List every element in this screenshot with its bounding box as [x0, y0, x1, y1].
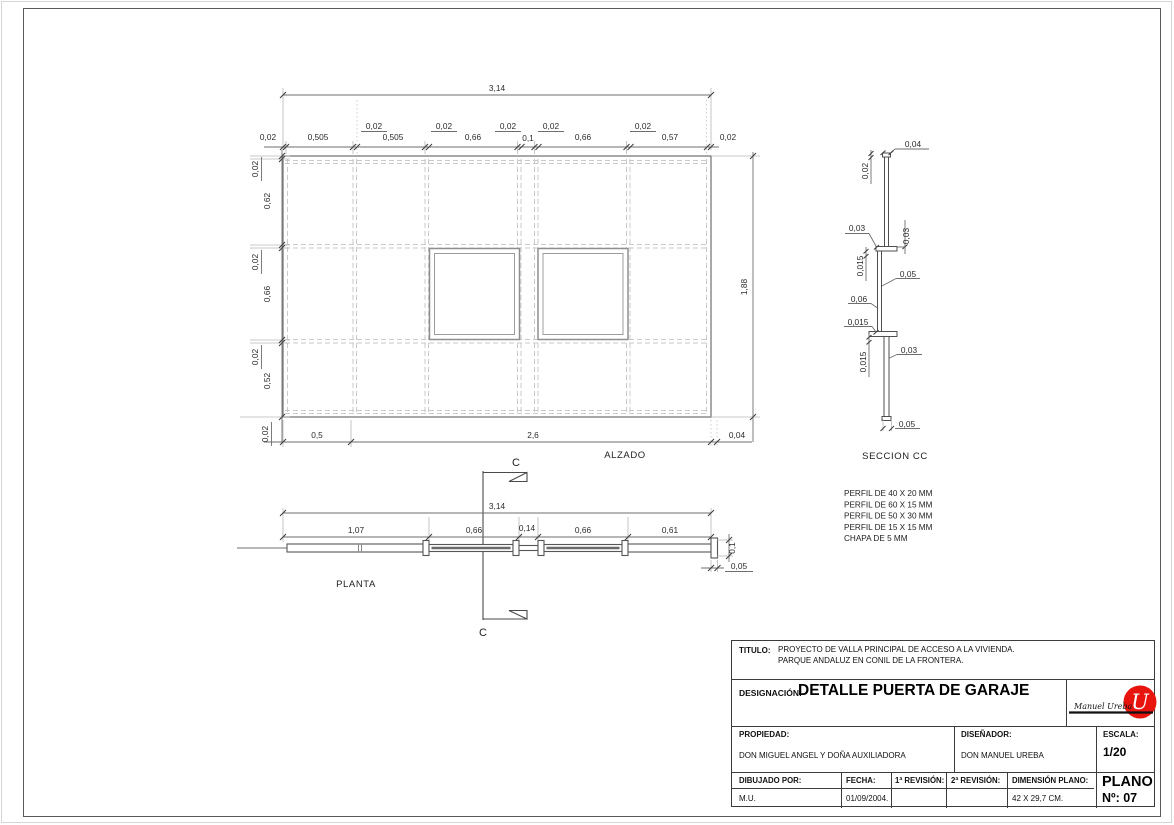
- note-line: PERFIL DE 40 X 20 MM: [844, 489, 933, 498]
- dim-label: 0,03: [901, 345, 918, 355]
- rev1-label: 1ª REVISIÓN:: [895, 776, 944, 785]
- dim-label: 2,6: [527, 430, 539, 440]
- fecha-value: 01/09/2004.: [846, 794, 888, 803]
- note-line: PERFIL DE 60 X 15 MM: [844, 500, 933, 509]
- dim-label: 1,88: [739, 279, 749, 296]
- titleblock-divider: [891, 772, 892, 808]
- elevation-dim-right: 1,88: [711, 152, 760, 442]
- dim-label: 0,66: [465, 132, 482, 142]
- dim-label: 0,57: [662, 132, 679, 142]
- titleblock-divider: [732, 788, 1094, 789]
- titulo-line2: PARQUE ANDALUZ EN CONIL DE LA FRONTERA.: [778, 656, 963, 665]
- section-profile: [869, 153, 897, 421]
- dim-label: 0,5: [311, 430, 323, 440]
- dim-label: 0,02: [250, 161, 260, 178]
- elevation-view: 3,14: [240, 83, 760, 461]
- designacion-label: DESIGNACIÓN:: [739, 688, 802, 698]
- dim-label: 0,61: [662, 525, 679, 535]
- dim-label: 1,07: [348, 525, 365, 535]
- dim-label: 0,1: [727, 542, 737, 554]
- dim-label: 0,1: [522, 133, 534, 143]
- plano-number: Nº: 07: [1102, 791, 1137, 805]
- note-line: PERFIL DE 15 X 15 MM: [844, 523, 933, 532]
- section-cut-letter-top: C: [512, 457, 520, 469]
- dim-label: 0,015: [848, 317, 869, 327]
- dim-label: 0,02: [366, 121, 383, 131]
- dim-label: 3,14: [489, 83, 506, 93]
- dim-label: 0,02: [860, 163, 870, 180]
- plan-dim-top: 3,14: [280, 501, 714, 542]
- dim-label: 0,02: [250, 254, 260, 271]
- propiedad-label: PROPIEDAD:: [739, 730, 789, 739]
- dim-label: 0,02: [543, 121, 560, 131]
- logo-monogram: U: [1131, 690, 1150, 714]
- dim-label: 0,14: [519, 523, 536, 533]
- dim-label: 0,05: [899, 419, 916, 429]
- dim-label: 0,02: [260, 132, 277, 142]
- titleblock-divider: [841, 772, 842, 808]
- titleblock-divider: [954, 726, 955, 772]
- dim-label: 0,02: [720, 132, 737, 142]
- escala-value: 1/20: [1103, 745, 1126, 759]
- elevation-dim-top: 3,14: [280, 83, 714, 154]
- section-title: SECCION CC: [862, 451, 928, 462]
- dim-label: 0,02: [436, 121, 453, 131]
- dim-label: 0,05: [900, 269, 917, 279]
- dim-label: 0,06: [851, 294, 868, 304]
- dim-label: 0,02: [250, 349, 260, 366]
- dim-label: 0,505: [308, 132, 329, 142]
- elevation-window-right: [538, 249, 628, 340]
- dibujado-value: M.U.: [739, 794, 756, 803]
- dim-label: 0,04: [905, 139, 922, 149]
- dim-label: 0,02: [500, 121, 517, 131]
- note-line: CHAPA DE 5 MM: [844, 534, 908, 543]
- drawing-sheet: 3,14: [0, 0, 1174, 825]
- rev2-label: 2ª REVISIÓN:: [951, 776, 1000, 785]
- elevation-dim-bottom: 0,5 2,6 0,04: [264, 420, 752, 447]
- plan-door-assembly: [287, 538, 718, 558]
- titleblock-divider: [1096, 726, 1097, 808]
- titleblock-divider: [946, 772, 947, 808]
- elevation-window-left: [430, 249, 520, 340]
- plan-title: PLANTA: [336, 579, 376, 590]
- dim-label: 0,02: [635, 121, 652, 131]
- plano-label: PLANO: [1102, 774, 1153, 790]
- note-line: PERFIL DE 50 X 30 MM: [844, 512, 933, 521]
- dim-label: 0,015: [855, 255, 865, 276]
- elevation-title: ALZADO: [604, 450, 646, 461]
- dim-label: 0,66: [262, 286, 272, 303]
- section-view: 0,04 0,02 0,03 0,03 0,015 0,0: [844, 139, 929, 462]
- logo-signature: Manuel Ureba: [1073, 702, 1133, 711]
- elevation-dim-segments: 0,02 0,505 0,02 0,505 0,02 0,66 0,02 0,1…: [260, 121, 737, 154]
- dibujado-label: DIBUJADO POR:: [739, 776, 801, 785]
- titulo-label: TITULO:: [739, 646, 771, 655]
- titleblock-divider: [1007, 772, 1008, 808]
- dim-label: 0,66: [575, 525, 592, 535]
- dimension-value: 42 X 29,7 CM.: [1012, 794, 1063, 803]
- titulo-line1: PROYECTO DE VALLA PRINCIPAL DE ACCESO A …: [778, 645, 1015, 654]
- dim-label: 0,015: [858, 351, 868, 372]
- dim-label: 0,05: [731, 561, 748, 571]
- dim-label: 0,02: [260, 426, 270, 443]
- disenador-value: DON MANUEL UREBA: [961, 751, 1044, 760]
- disenador-label: DISEÑADOR:: [961, 730, 1012, 739]
- titleblock-divider: [732, 772, 1154, 773]
- designacion-value: DETALLE PUERTA DE GARAJE: [798, 682, 1029, 700]
- dim-label: 0,03: [901, 228, 911, 245]
- title-block: TITULO: PROYECTO DE VALLA PRINCIPAL DE A…: [731, 640, 1155, 807]
- profile-notes: PERFIL DE 40 X 20 MM PERFIL DE 60 X 15 M…: [844, 489, 933, 543]
- titleblock-divider: [732, 726, 1154, 727]
- company-logo: Manuel Ureba U: [1066, 679, 1156, 726]
- section-cut-letter-bottom: C: [479, 627, 487, 639]
- dim-label: 3,14: [489, 501, 506, 511]
- plan-view: 3,14 1,07 0,66 0,14 0,66 0,61: [237, 501, 753, 590]
- dim-label: 0,04: [729, 430, 746, 440]
- dim-label: 0,52: [262, 373, 272, 390]
- dim-label: 0,505: [383, 132, 404, 142]
- escala-label: ESCALA:: [1103, 730, 1139, 739]
- plan-dim-segments: 1,07 0,66 0,14 0,66 0,61: [280, 517, 714, 540]
- dimension-label: DIMENSIÓN PLANO:: [1012, 776, 1088, 785]
- dim-label: 0,66: [575, 132, 592, 142]
- propiedad-value: DON MIGUEL ANGEL Y DOÑA AUXILIADORA: [739, 751, 906, 760]
- fecha-label: FECHA:: [846, 776, 875, 785]
- dim-label: 0,62: [262, 193, 272, 210]
- dim-label: 0,03: [849, 223, 866, 233]
- dim-label: 0,66: [466, 525, 483, 535]
